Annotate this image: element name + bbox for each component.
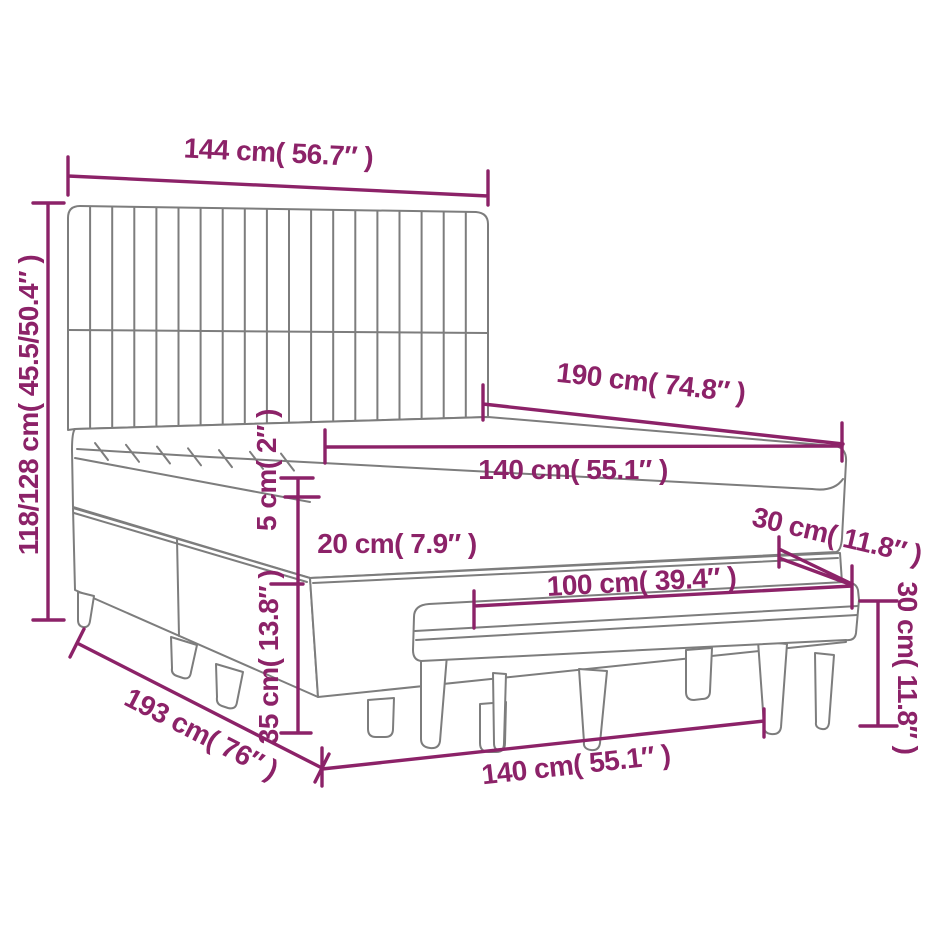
dim-headboard-width: 144 cm( 56.7″ ) — [68, 132, 488, 205]
dim-label-mattress-height: 20 cm( 7.9″ ) — [317, 528, 476, 559]
dim-label-headboard-width: 144 cm( 56.7″ ) — [183, 132, 374, 172]
bed-leg — [171, 637, 197, 678]
dim-label-mattress-length: 190 cm( 74.8″ ) — [555, 357, 747, 409]
headboard — [68, 206, 488, 430]
dim-label-bed-width: 140 cm( 55.1″ ) — [480, 739, 672, 791]
dim-label-total-height: 118/128 cm( 45.5/50.4″ ) — [13, 255, 44, 555]
headboard-outline — [68, 206, 488, 430]
dim-label-mattress-width: 140 cm( 55.1″ ) — [478, 454, 668, 485]
bed-leg — [368, 698, 394, 737]
dim-label-bench-height: 30 cm( 11.8″ ) — [892, 582, 923, 755]
bench-leg-back-left — [493, 673, 506, 750]
dim-label-topper-height: 5 cm( 2″ ) — [251, 409, 282, 531]
bed-leg — [686, 648, 712, 700]
dim-total-height: 118/128 cm( 45.5/50.4″ ) — [13, 203, 64, 620]
bench-leg-front-left — [421, 652, 447, 748]
dimension-diagram: 144 cm( 56.7″ ) 118/128 cm( 45.5/50.4″ )… — [0, 0, 947, 947]
bed-artwork — [68, 206, 859, 752]
bed-leg — [78, 592, 94, 627]
dim-label-base-height: 35 cm( 13.8″ ) — [253, 570, 284, 745]
bed-and-bench-line-art: 144 cm( 56.7″ ) 118/128 cm( 45.5/50.4″ )… — [0, 0, 947, 947]
bench-leg-back-right — [815, 653, 834, 729]
dim-bench-height: 30 cm( 11.8″ ) — [860, 582, 923, 755]
dim-line — [860, 601, 897, 726]
bed-leg — [216, 664, 243, 708]
